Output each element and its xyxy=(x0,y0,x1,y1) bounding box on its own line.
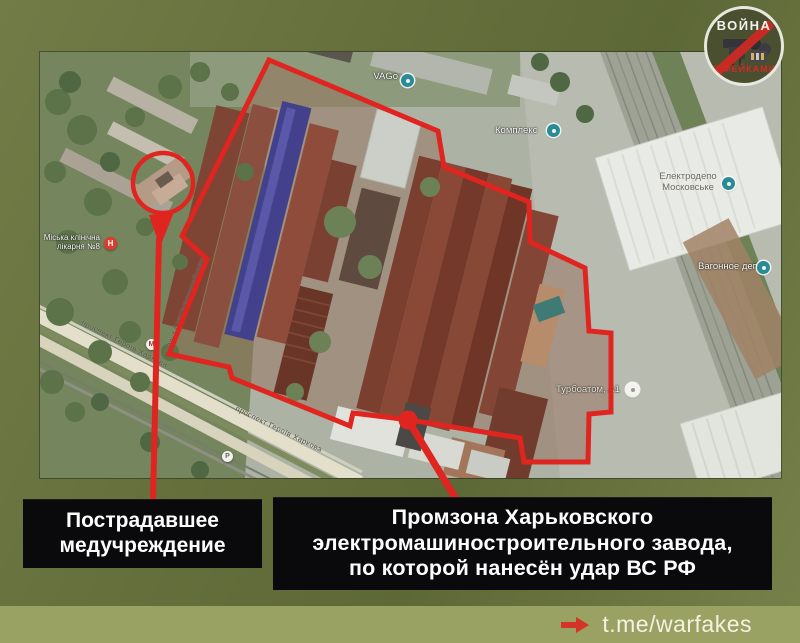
logo-subtitle: С ФЕЙКАМИ xyxy=(712,64,776,74)
telegram-handle-link[interactable]: t.me/warfakes xyxy=(602,611,752,638)
satellite-map-art xyxy=(40,52,781,478)
satellite-map xyxy=(40,52,781,478)
metro-marker-icon: М xyxy=(146,339,157,350)
war-on-fakes-logo: ВОЙНА С ФЕЙКАМИ xyxy=(704,6,784,86)
map-pin-komplex-icon xyxy=(547,124,560,137)
hospital-marker-icon: Н xyxy=(104,237,117,250)
hospital-callout-box: Пострадавшее медучреждение xyxy=(23,499,262,568)
hospital-callout-label: Пострадавшее медучреждение xyxy=(59,509,225,558)
footer-strip: t.me/warfakes xyxy=(0,606,800,643)
map-pin-electrodepot-icon xyxy=(722,177,735,190)
map-pin-wagon-depot-icon xyxy=(757,261,770,274)
logo-title: ВОЙНА xyxy=(717,18,772,33)
map-pin-turboatom-icon xyxy=(626,383,639,396)
map-pin-vago-icon xyxy=(401,74,414,87)
factory-callout-box: Промзона Харьковского электромашинострои… xyxy=(273,497,772,590)
factory-callout-label: Промзона Харьковского электромашинострои… xyxy=(312,505,732,581)
red-arrow-icon xyxy=(561,617,589,633)
parking-marker-icon: Р xyxy=(222,451,233,462)
